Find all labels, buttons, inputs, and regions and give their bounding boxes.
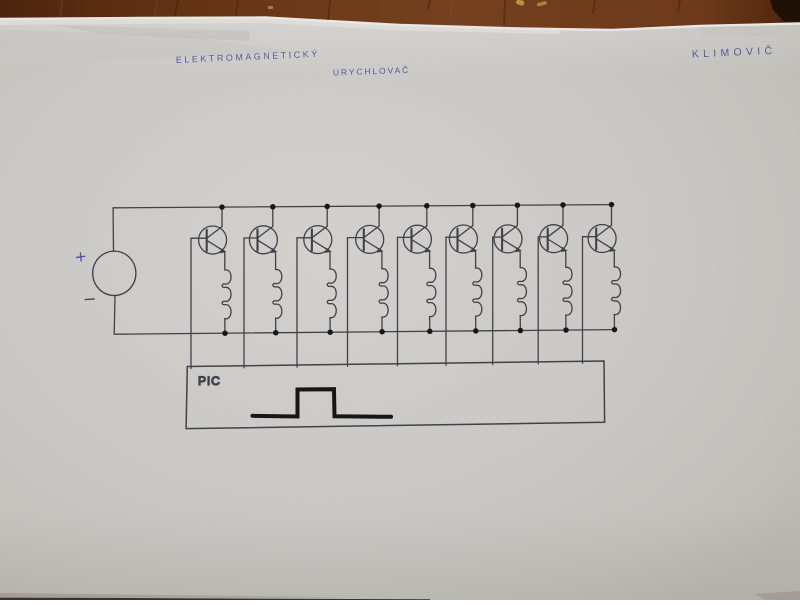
svg-text:PiC: PiC (198, 374, 221, 388)
